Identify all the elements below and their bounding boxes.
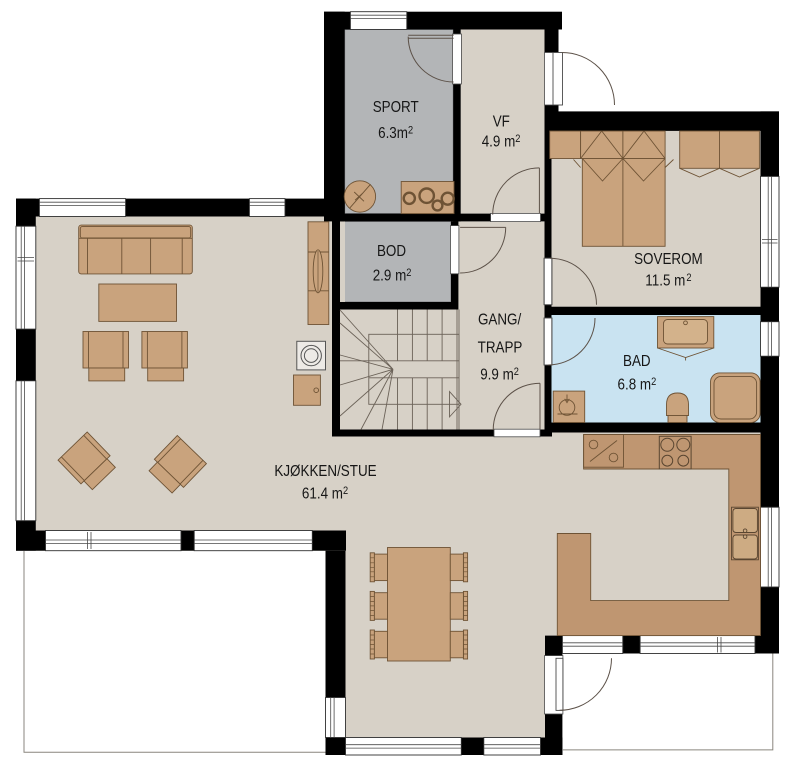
svg-text:2: 2 (651, 376, 656, 388)
svg-text:SPORT: SPORT (373, 99, 419, 116)
svg-text:2: 2 (406, 267, 411, 279)
svg-text:KJØKKEN/STUE: KJØKKEN/STUE (274, 463, 376, 480)
svg-text:SOVEROM: SOVEROM (634, 251, 703, 268)
svg-text:TRAPP: TRAPP (478, 339, 523, 356)
svg-text:2: 2 (686, 272, 691, 284)
svg-text:6.8 m: 6.8 m (618, 376, 652, 393)
svg-text:2: 2 (514, 366, 519, 378)
svg-text:2: 2 (408, 125, 413, 137)
svg-text:11.5 m: 11.5 m (645, 272, 685, 289)
svg-text:2: 2 (515, 133, 520, 145)
svg-text:VF: VF (493, 114, 510, 131)
svg-text:2: 2 (343, 485, 348, 497)
svg-text:BOD: BOD (377, 243, 406, 260)
svg-text:BAD: BAD (623, 353, 651, 370)
svg-text:GANG/: GANG/ (478, 312, 522, 329)
svg-text:4.9 m: 4.9 m (482, 133, 516, 150)
svg-text:2.9 m: 2.9 m (373, 268, 407, 285)
svg-text:9.9 m: 9.9 m (480, 366, 514, 383)
svg-text:61.4 m: 61.4 m (302, 486, 343, 503)
svg-text:6.3m: 6.3m (378, 125, 408, 142)
